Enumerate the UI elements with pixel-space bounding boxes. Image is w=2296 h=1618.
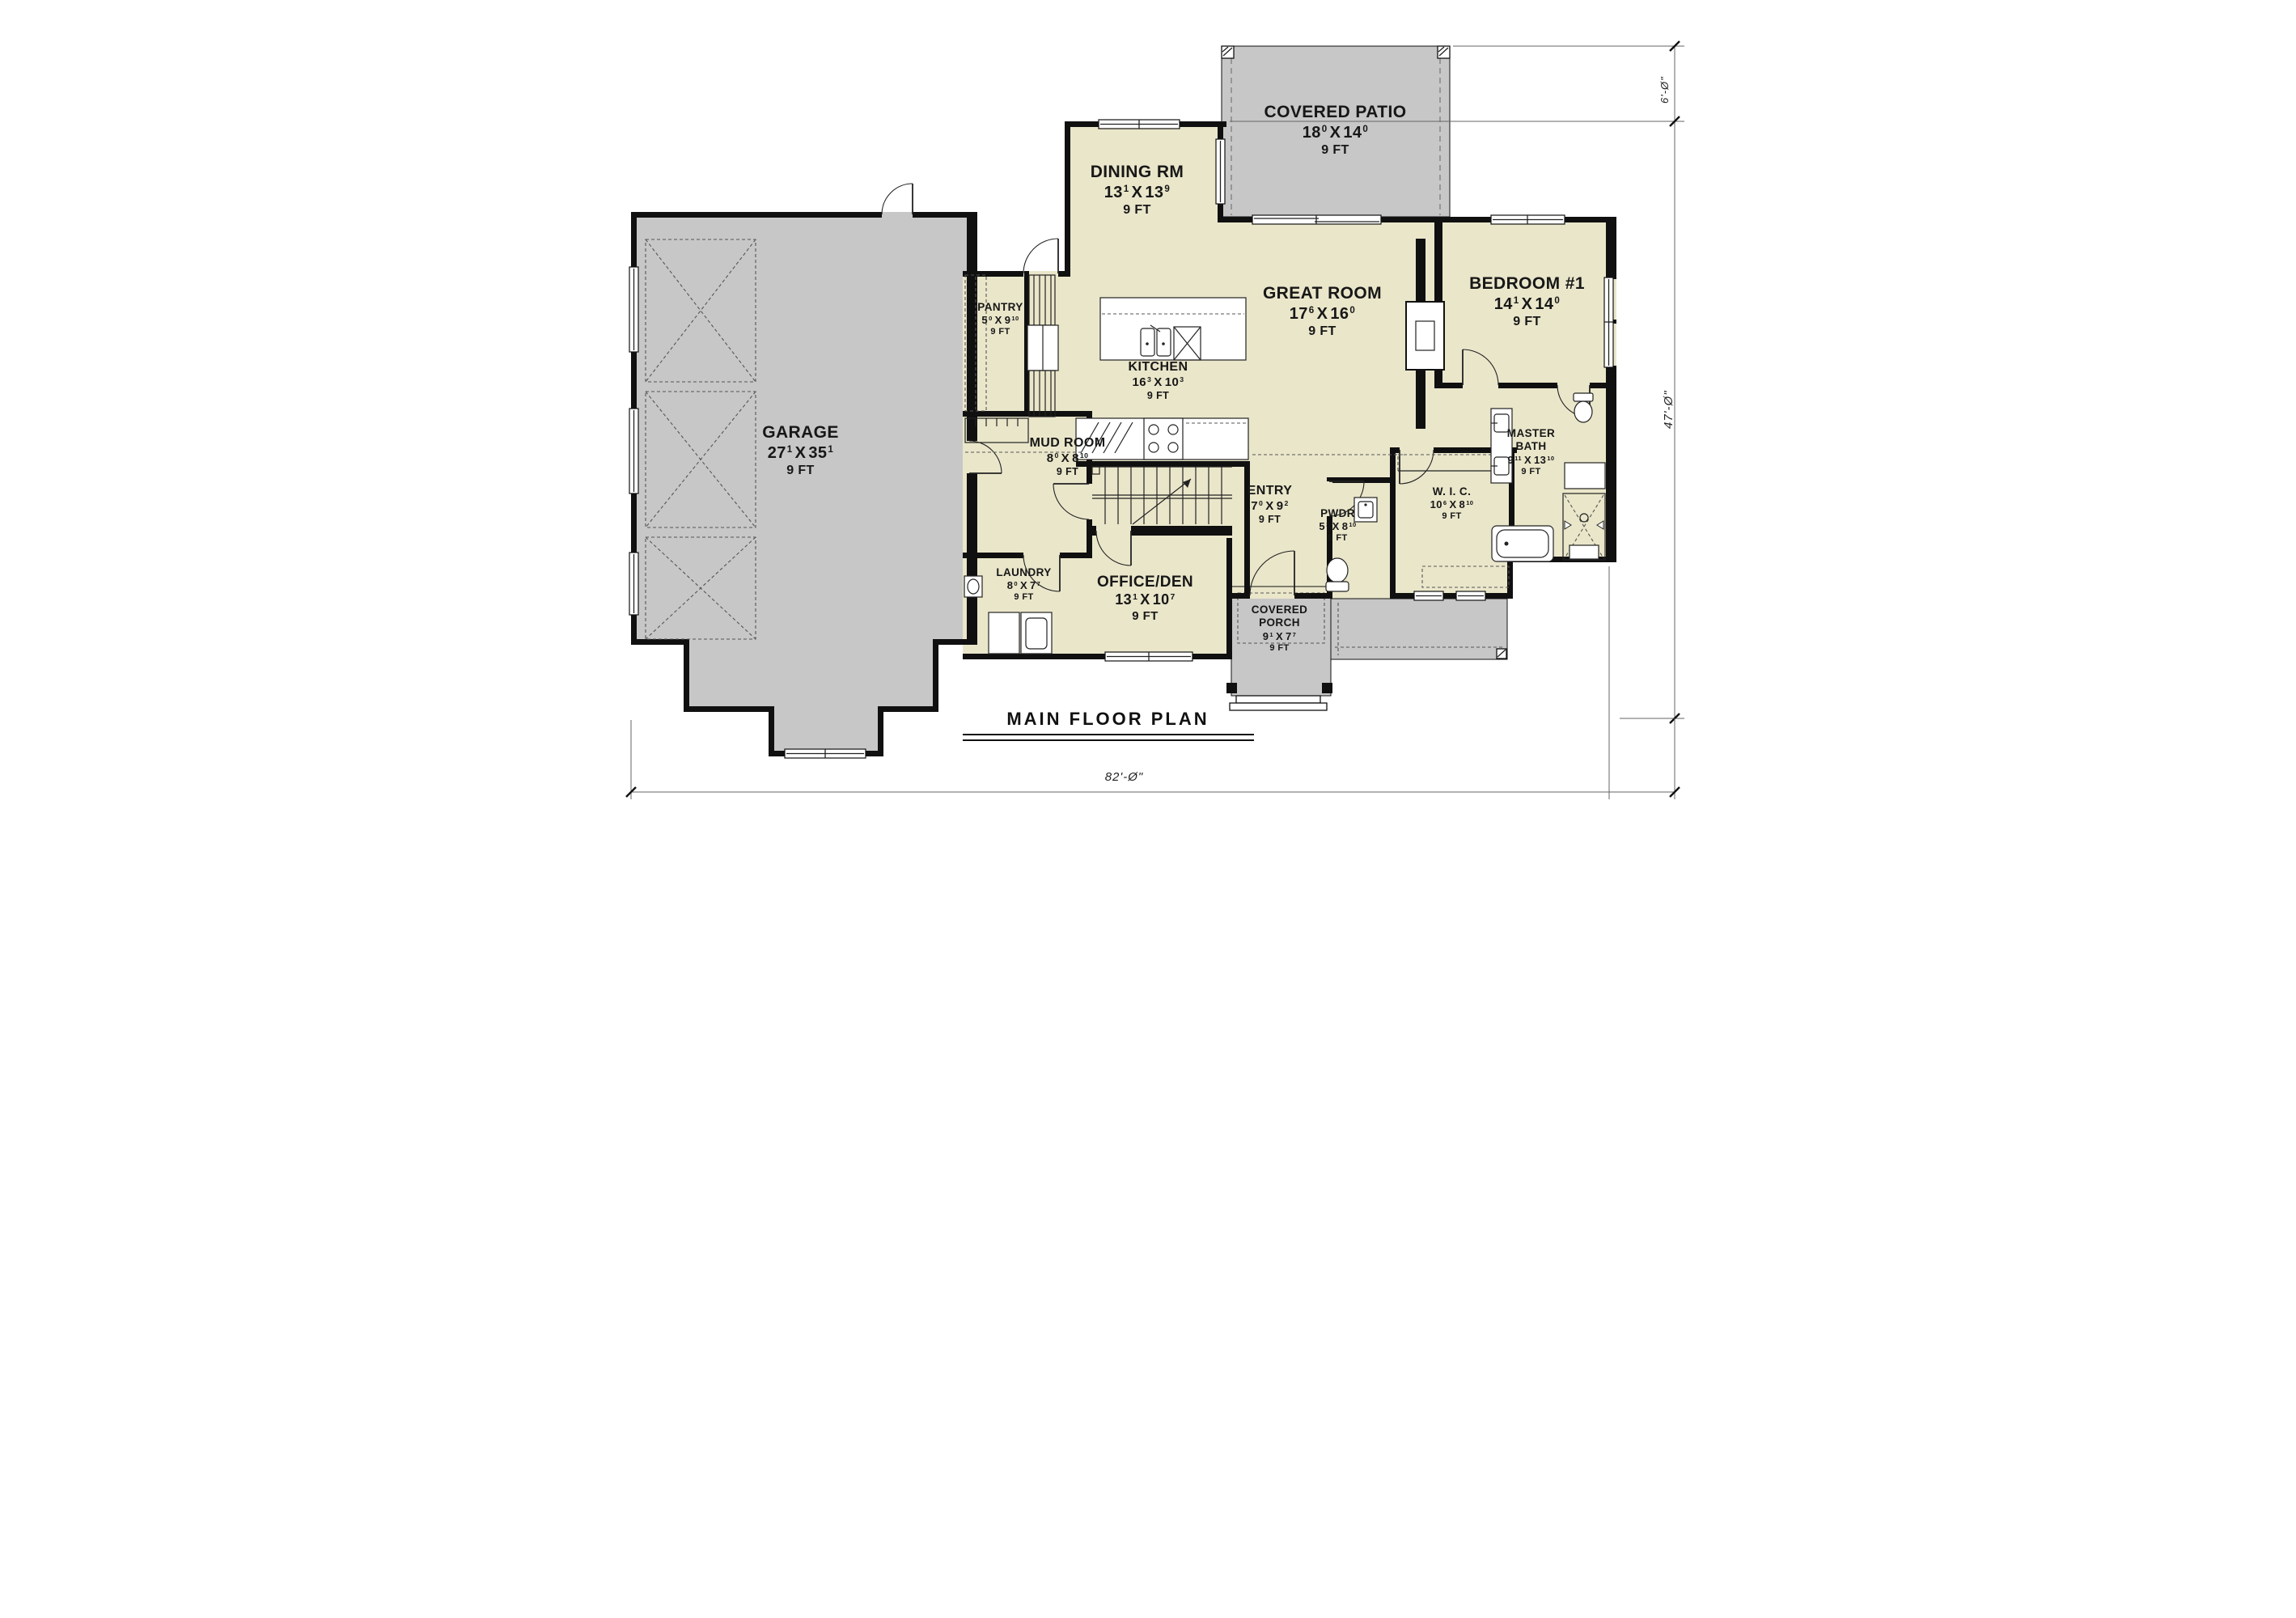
- pantry-door: [1023, 239, 1058, 273]
- room-dimensions: 91X77: [1241, 630, 1318, 643]
- office-window: [1105, 652, 1192, 661]
- room-dimensions: 80X77: [996, 579, 1051, 592]
- overall-depth-dimension: 47'-Ø": [1662, 390, 1675, 429]
- room-name: W. I. C.: [1430, 485, 1474, 498]
- room-name: OFFICE/DEN: [1097, 573, 1193, 591]
- dining-window: [1099, 120, 1180, 129]
- title-block: MAIN FLOOR PLAN: [963, 709, 1254, 741]
- pwdr-toilet: [1326, 558, 1349, 591]
- room-dimensions: 131X139: [1091, 183, 1184, 202]
- fireplace: [1406, 302, 1444, 370]
- floor-plan-document: GARAGE 271X351 9 FT COVERED PATIO 180X14…: [574, 0, 1722, 809]
- garage-area: [631, 212, 972, 756]
- stoop-window: [1414, 591, 1443, 600]
- room-dimensions: 180X140: [1264, 123, 1407, 142]
- garage-window: [629, 409, 638, 493]
- garage-window: [629, 553, 638, 615]
- room-name: MUD ROOM: [1030, 435, 1106, 451]
- plan-title: MAIN FLOOR PLAN: [963, 709, 1254, 730]
- room-ceiling-height: 9 FT: [1030, 466, 1106, 478]
- linen-cabinet: [1565, 463, 1605, 489]
- room-label-garage: GARAGE 271X351 9 FT: [762, 422, 839, 479]
- bedroom-window: [1491, 215, 1565, 224]
- room-label-pwdr: PWDR 53X810 9 FT: [1319, 507, 1356, 544]
- room-label-entry: ENTRY 70X92 9 FT: [1248, 483, 1293, 526]
- side-stoop-area: [1331, 599, 1507, 659]
- room-label-great-room: GREAT ROOM 176X160 9 FT: [1263, 283, 1382, 340]
- room-name: BEDROOM #1: [1469, 273, 1585, 294]
- room-ceiling-height: 9 FT: [762, 463, 839, 479]
- pwdr-vanity: [1354, 498, 1377, 522]
- room-ceiling-height: 9 FT: [996, 592, 1051, 603]
- room-name: ENTRY: [1248, 483, 1293, 499]
- stoop-post: [1497, 649, 1506, 659]
- room-ceiling-height: 9 FT: [1493, 467, 1569, 477]
- room-name: KITCHEN: [1129, 359, 1188, 375]
- room-label-bedroom-1: BEDROOM #1 141X140 9 FT: [1469, 273, 1585, 330]
- room-ceiling-height: 9 FT: [1319, 533, 1356, 544]
- range: [1144, 418, 1183, 460]
- kitchen-island: [1100, 298, 1246, 360]
- overall-width-dimension: 82'-Ø": [1092, 770, 1157, 784]
- room-ceiling-height: 9 FT: [1091, 202, 1184, 218]
- room-name: COVERED PORCH: [1241, 604, 1318, 630]
- room-ceiling-height: 9 FT: [1097, 609, 1193, 624]
- porch-post: [1226, 683, 1237, 693]
- room-label-office-den: OFFICE/DEN 131X107 9 FT: [1097, 573, 1193, 624]
- room-ceiling-height: 9 FT: [1469, 314, 1585, 330]
- dining-side-window: [1216, 139, 1225, 204]
- garage-window: [629, 267, 638, 352]
- room-ceiling-height: 9 FT: [1263, 324, 1382, 340]
- room-label-covered-patio: COVERED PATIO 180X140 9 FT: [1264, 102, 1407, 159]
- room-name: COVERED PATIO: [1264, 102, 1407, 123]
- stoop-window: [1456, 591, 1485, 600]
- room-dimensions: 911X1310: [1493, 454, 1569, 467]
- bathtub: [1492, 526, 1553, 561]
- room-ceiling-height: 9 FT: [1129, 390, 1188, 402]
- bedroom-side-window: [1604, 277, 1613, 367]
- room-dimensions: 141X140: [1469, 294, 1585, 314]
- room-dimensions: 163X103: [1129, 375, 1188, 390]
- floor-plan-drawing: [574, 0, 1722, 809]
- master-toilet: [1574, 393, 1593, 422]
- room-label-master-bath: MASTER BATH 911X1310 9 FT: [1493, 427, 1569, 477]
- room-name: GARAGE: [762, 422, 839, 443]
- patio-post: [1438, 46, 1450, 58]
- room-ceiling-height: 9 FT: [1264, 142, 1407, 159]
- room-name: MASTER BATH: [1493, 427, 1569, 454]
- room-label-laundry: LAUNDRY 80X77 9 FT: [996, 566, 1051, 604]
- room-ceiling-height: 9 FT: [1248, 514, 1293, 526]
- room-name: LAUNDRY: [996, 566, 1051, 579]
- room-label-pantry: PANTRY 50X910 9 FT: [977, 301, 1023, 338]
- room-name: PANTRY: [977, 301, 1023, 314]
- room-ceiling-height: 9 FT: [1430, 511, 1474, 522]
- patio-slider-door: [1252, 215, 1381, 224]
- room-dimensions: 50X910: [977, 314, 1023, 327]
- room-dimensions: 106X810: [1430, 498, 1474, 511]
- room-dimensions: 53X810: [1319, 520, 1356, 533]
- patio-offset-dimension: 6'-Ø": [1658, 76, 1671, 104]
- room-dimensions: 80X810: [1030, 451, 1106, 466]
- room-label-covered-porch: COVERED PORCH 91X77 9 FT: [1241, 604, 1318, 654]
- room-label-dining-rm: DINING RM 131X139 9 FT: [1091, 162, 1184, 218]
- room-ceiling-height: 9 FT: [1241, 643, 1318, 654]
- room-dimensions: 70X92: [1248, 499, 1293, 514]
- porch-post: [1322, 683, 1332, 693]
- room-label-mud-room: MUD ROOM 80X810 9 FT: [1030, 435, 1106, 478]
- room-dimensions: 271X351: [762, 443, 839, 463]
- room-name: DINING RM: [1091, 162, 1184, 183]
- garage-side-door: [882, 184, 913, 214]
- title-underline: [963, 734, 1254, 741]
- patio-post: [1222, 46, 1234, 58]
- room-dimensions: 176X160: [1263, 304, 1382, 324]
- room-name: PWDR: [1319, 507, 1356, 520]
- room-dimensions: 131X107: [1097, 591, 1193, 609]
- garage-bay-window: [785, 749, 866, 758]
- room-name: GREAT ROOM: [1263, 283, 1382, 304]
- room-ceiling-height: 9 FT: [977, 327, 1023, 337]
- room-label-wic: W. I. C. 106X810 9 FT: [1430, 485, 1474, 523]
- room-label-kitchen: KITCHEN 163X103 9 FT: [1129, 359, 1188, 402]
